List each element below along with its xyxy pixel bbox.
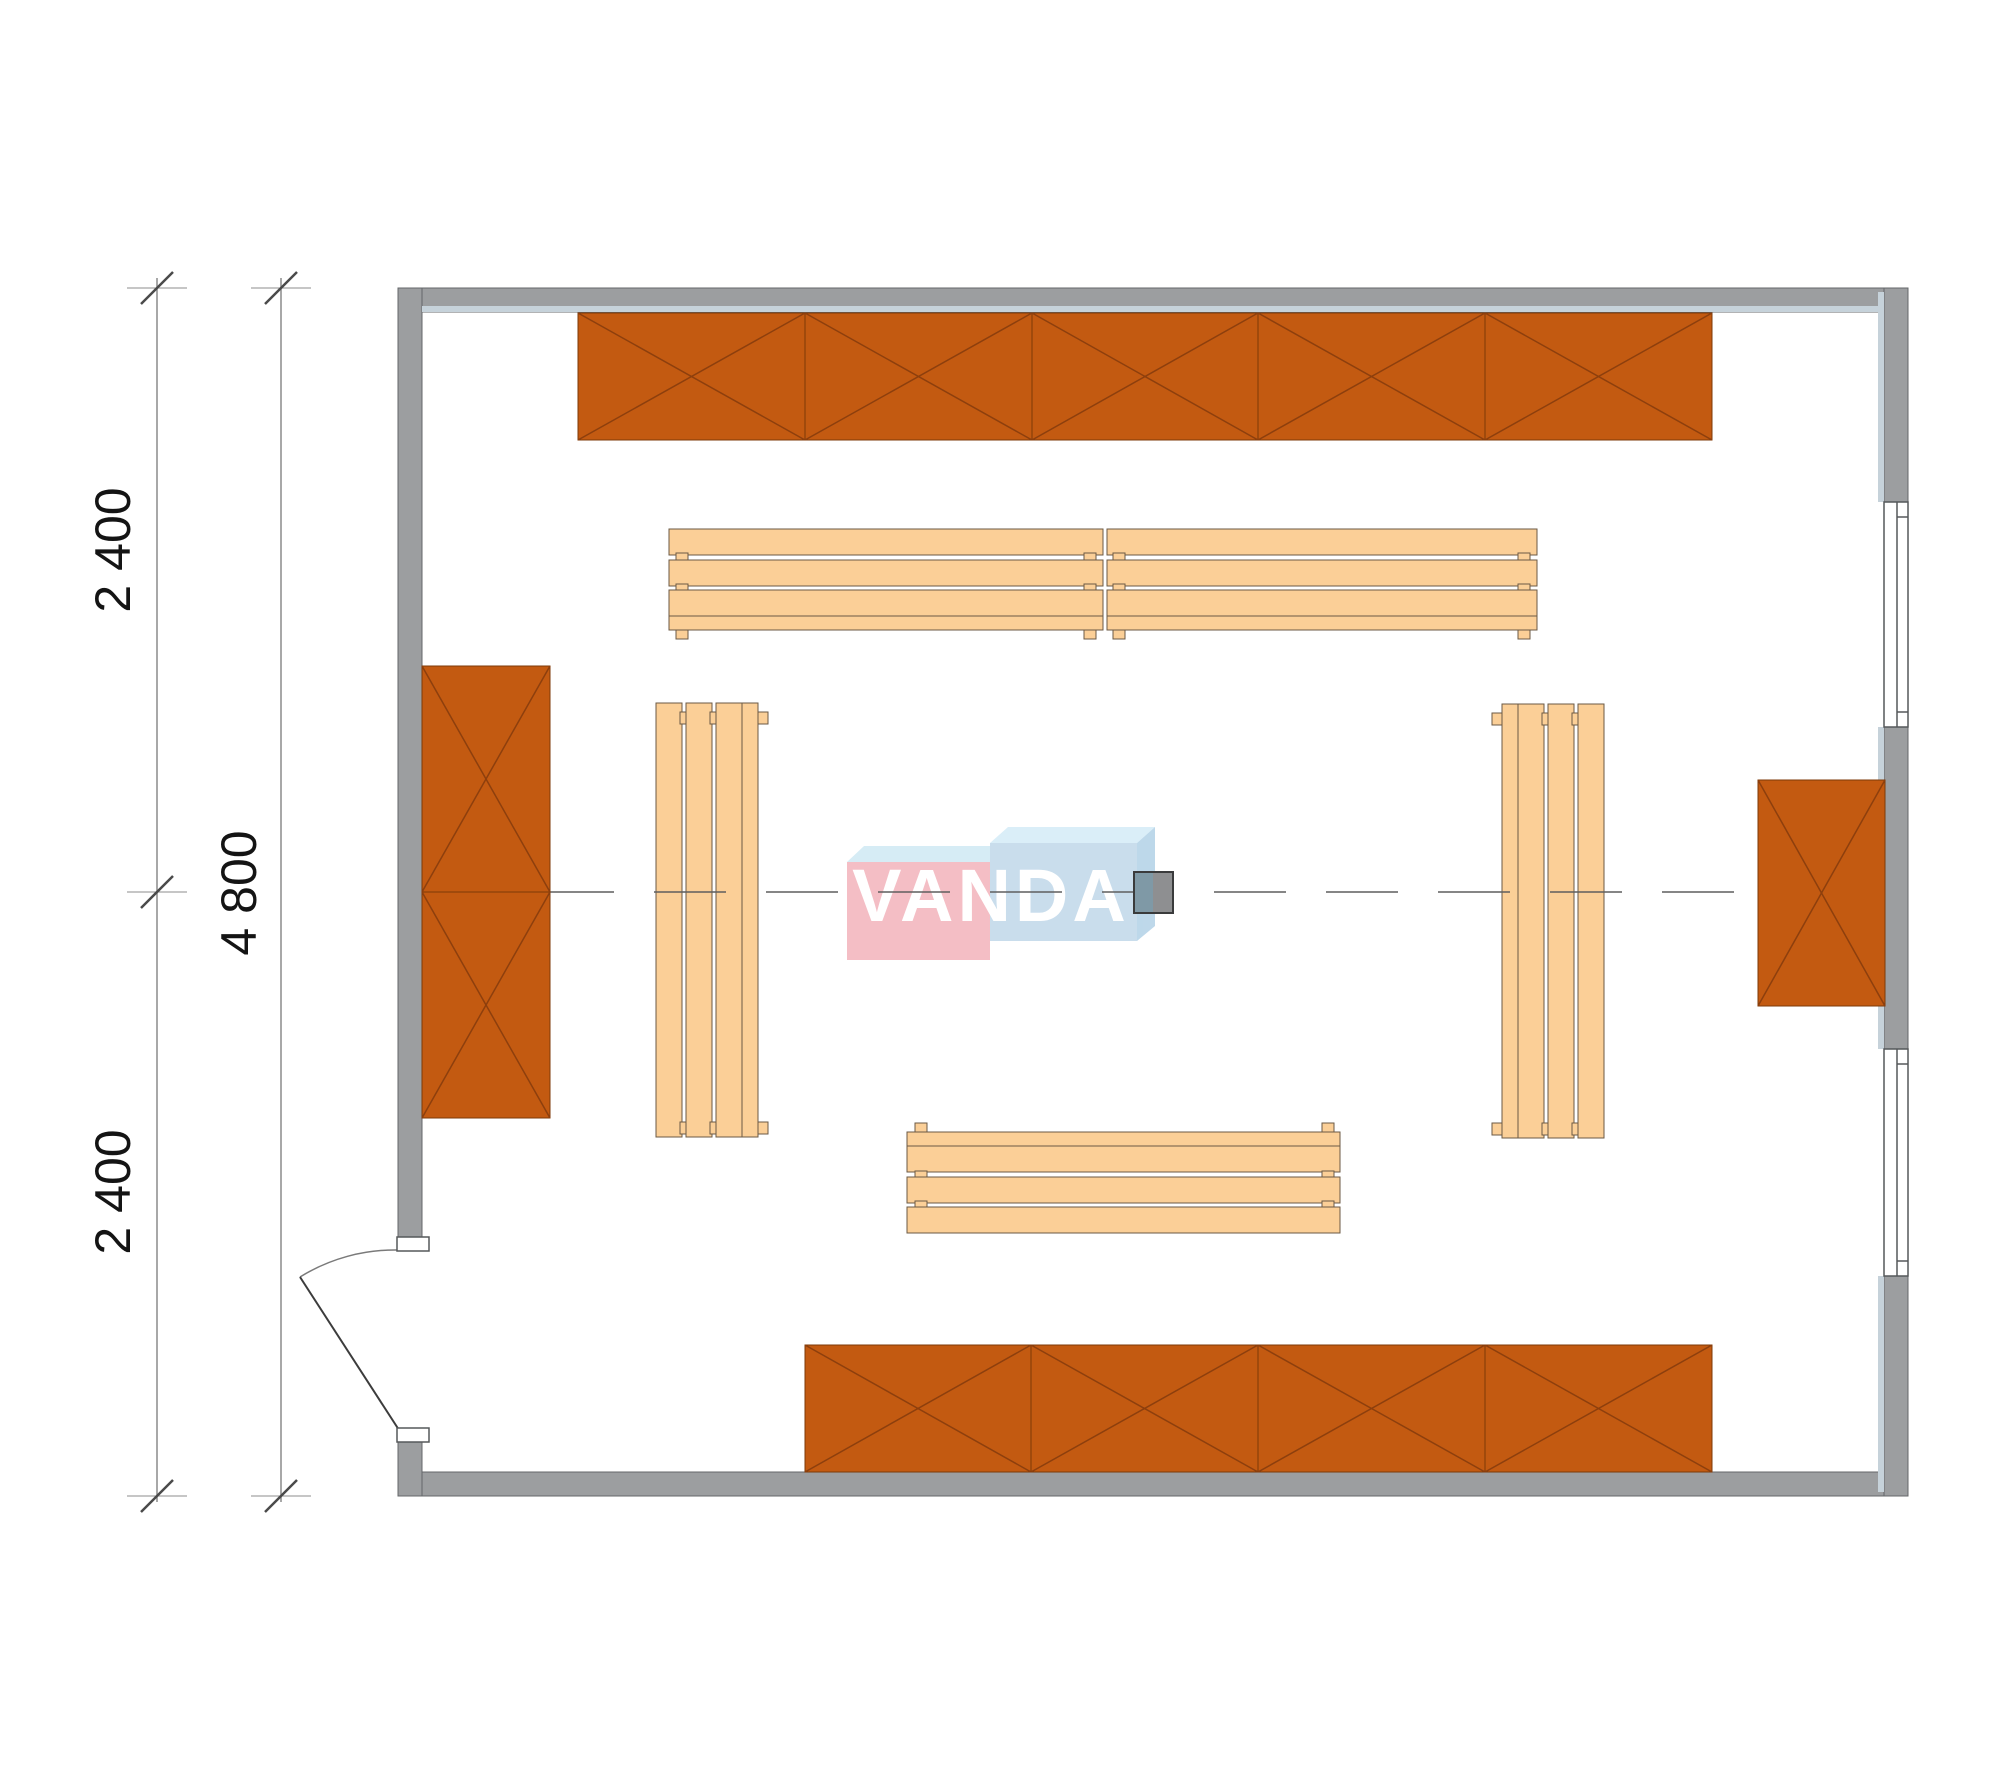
bench-slat <box>1518 704 1544 1138</box>
bench-foot <box>1492 1123 1502 1135</box>
door-leaf <box>300 1277 399 1430</box>
watermark-blue-box-top-face <box>990 827 1155 843</box>
bench-slat <box>907 1177 1340 1203</box>
center-block-left-half <box>1134 872 1153 913</box>
bench-apron <box>1502 704 1518 1138</box>
cabinet-left-wall <box>422 666 550 1118</box>
wall-right-lower <box>1884 1276 1908 1496</box>
bench-apron <box>742 703 758 1137</box>
wall-highlight-right-3 <box>1878 1276 1884 1492</box>
wall-right-middle <box>1884 727 1908 1049</box>
bench-slat <box>669 529 1103 555</box>
window-frame <box>1884 1049 1908 1276</box>
bench-slat <box>686 703 712 1137</box>
wall-left-door-stub <box>398 1440 422 1496</box>
bench-apron <box>669 616 1103 630</box>
wall-right-upper <box>1884 288 1908 502</box>
bench-apron <box>1107 616 1537 630</box>
center-block-right-half <box>1153 872 1173 913</box>
cabinet-row-bottom <box>805 1345 1712 1472</box>
center-block <box>1134 872 1173 913</box>
door-swing-arc <box>300 1250 399 1277</box>
window-frame <box>1884 502 1908 727</box>
window-lower <box>1884 1049 1908 1276</box>
bench-foot <box>1518 630 1530 639</box>
watermark: VANDA <box>847 827 1155 960</box>
bench-slat <box>669 590 1103 616</box>
bench-slat <box>1548 704 1574 1138</box>
bench-foot <box>1113 630 1125 639</box>
dimension-label-top: 2 400 <box>85 487 141 612</box>
bench-vertical-right <box>1492 704 1604 1138</box>
door-jamb-bottom <box>397 1428 429 1442</box>
bench-foot <box>1492 713 1502 725</box>
dimension-label-bottom: 2 400 <box>85 1129 141 1254</box>
bench-lower <box>907 1123 1340 1233</box>
door-jamb-top <box>397 1237 429 1251</box>
bench-foot <box>915 1123 927 1132</box>
floor-plan-drawing: 2 400 4 800 2 400 <box>0 0 2000 1786</box>
bench-foot <box>1322 1123 1334 1132</box>
bench-foot <box>676 630 688 639</box>
cabinet-right-wall <box>1758 780 1885 1006</box>
bench-slat <box>669 560 1103 586</box>
bench-vertical-left <box>656 703 768 1137</box>
door <box>300 1237 429 1442</box>
bench-slat <box>1107 560 1537 586</box>
bench-foot <box>1084 630 1096 639</box>
bench-foot <box>758 1122 768 1134</box>
cabinet-row-top <box>578 313 1712 440</box>
bench-slat <box>1107 590 1537 616</box>
bench-upper-right <box>1107 529 1537 639</box>
bench-slat <box>1578 704 1604 1138</box>
bench-slat <box>907 1207 1340 1233</box>
window-upper <box>1884 502 1908 727</box>
wall-bottom <box>398 1472 1908 1496</box>
watermark-brand-text: VANDA <box>852 854 1130 937</box>
bench-upper-left <box>669 529 1103 639</box>
wall-highlight-right-1 <box>1878 292 1884 502</box>
bench-slat <box>716 703 742 1137</box>
bench-slat <box>656 703 682 1137</box>
bench-slat <box>1107 529 1537 555</box>
bench-apron <box>907 1132 1340 1146</box>
wall-highlight-top <box>422 306 1884 312</box>
bench-foot <box>758 712 768 724</box>
dimension-label-total: 4 800 <box>211 830 267 955</box>
floor-plan-canvas: 2 400 4 800 2 400 <box>0 0 2000 1786</box>
wall-left <box>398 288 422 1237</box>
bench-slat <box>907 1146 1340 1172</box>
